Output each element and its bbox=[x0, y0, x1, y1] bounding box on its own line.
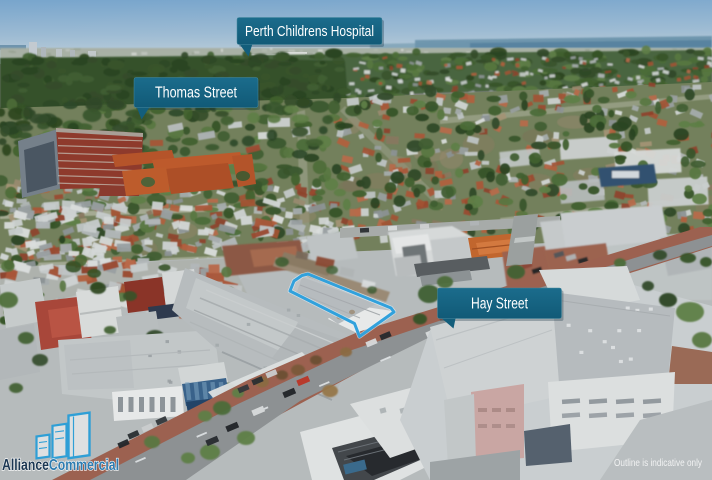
svg-text:Perth Childrens Hospital: Perth Childrens Hospital bbox=[245, 24, 374, 40]
svg-text:Outline is indicative only: Outline is indicative only bbox=[614, 458, 703, 469]
svg-text:Hay Street: Hay Street bbox=[471, 295, 529, 312]
svg-text:Thomas Street: Thomas Street bbox=[155, 85, 238, 102]
svg-text:AllianceCommercial: AllianceCommercial bbox=[2, 457, 119, 474]
